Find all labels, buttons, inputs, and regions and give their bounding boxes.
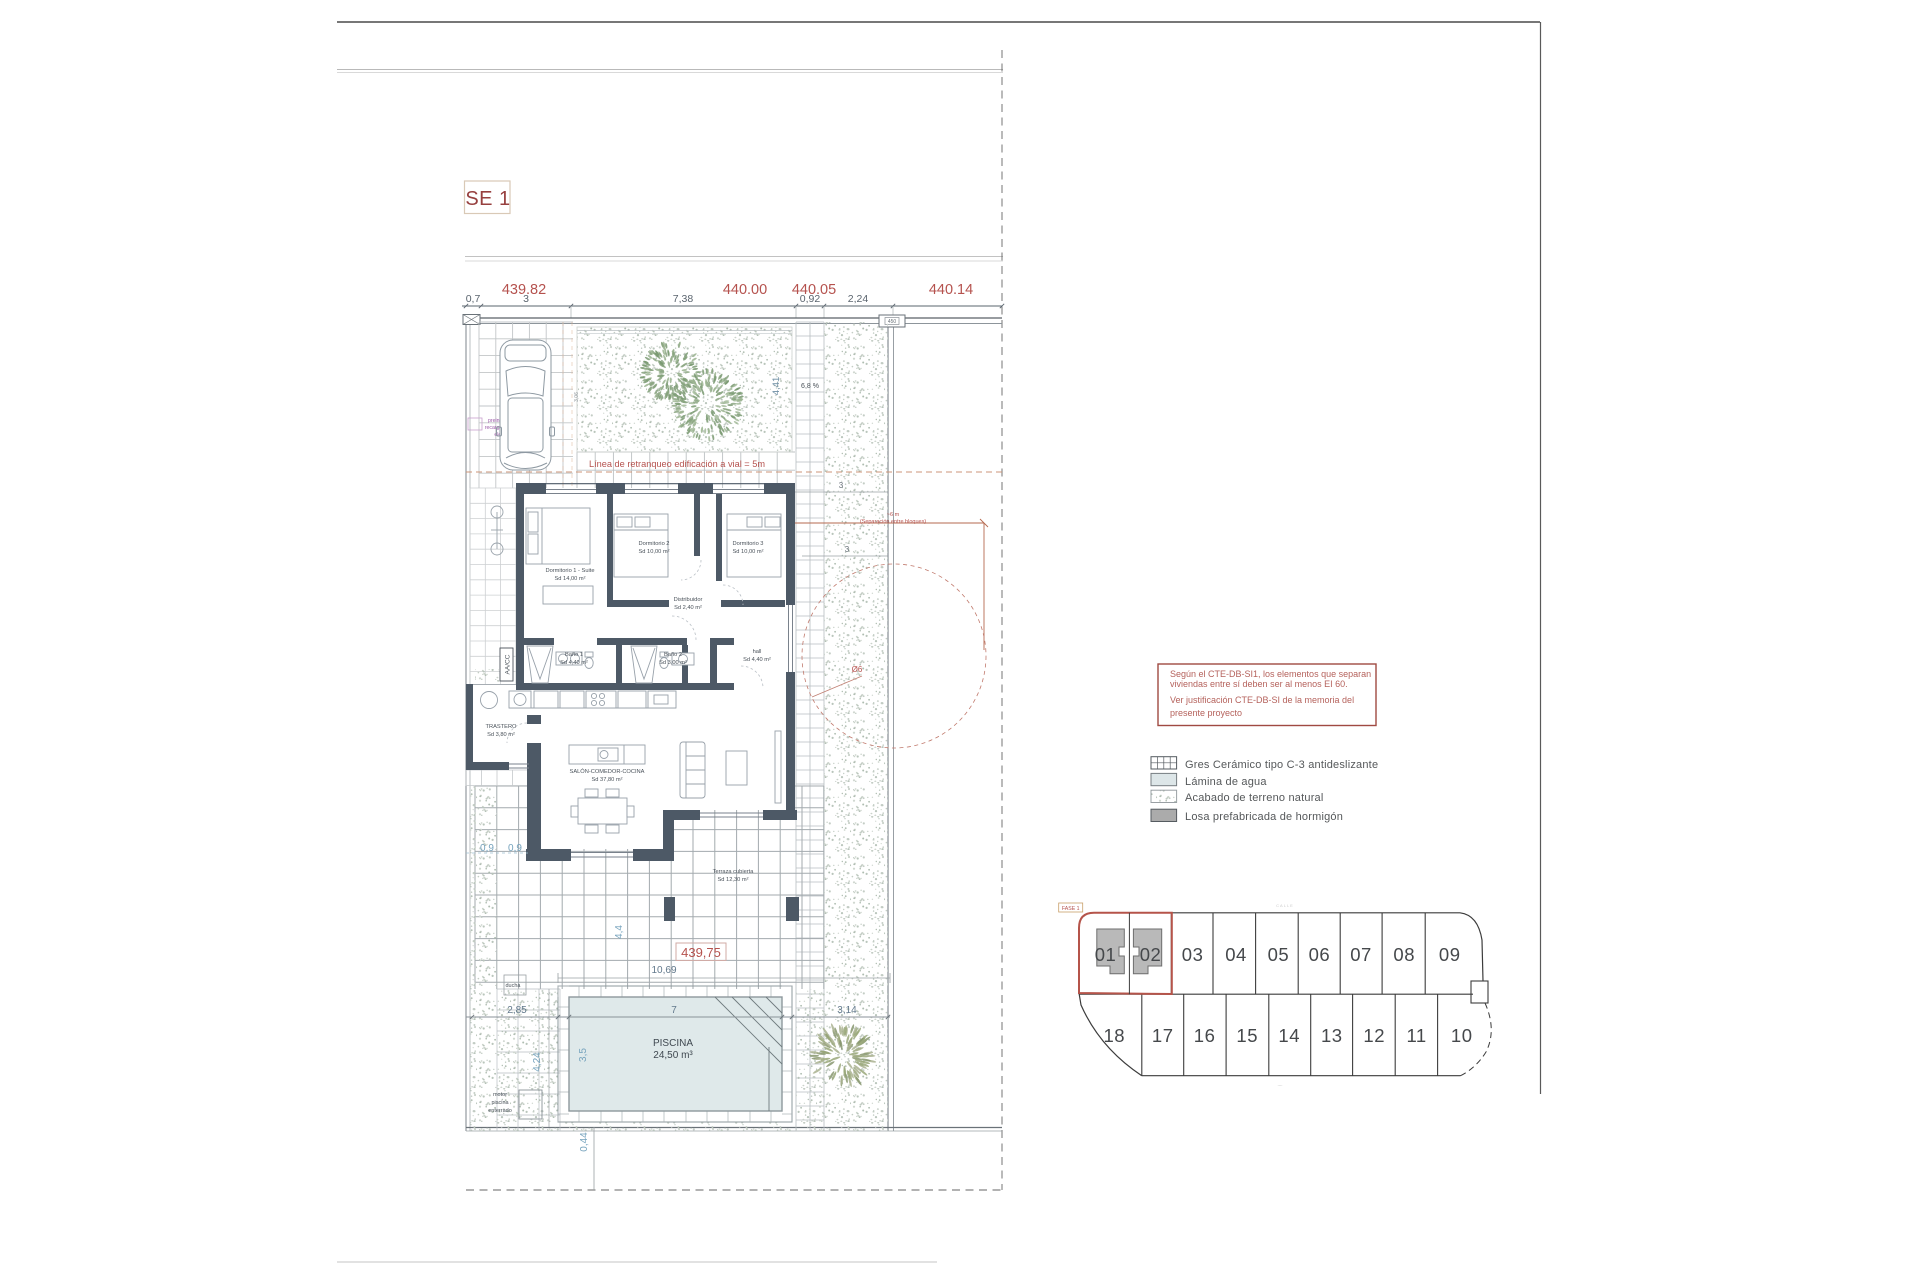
svg-text:11: 11 — [1406, 1025, 1426, 1046]
svg-text:viviendas entre sí deben ser a: viviendas entre sí deben ser al menos EI… — [1170, 679, 1348, 689]
svg-text:(Separación entre bloques): (Separación entre bloques) — [860, 519, 927, 525]
svg-text:Baño 2: Baño 2 — [664, 652, 682, 658]
svg-text:24,50 m³: 24,50 m³ — [653, 1050, 693, 1061]
svg-text:440.00: 440.00 — [723, 282, 767, 298]
svg-text:09: 09 — [1439, 944, 1461, 965]
svg-text:Dormitorio 1 - Suite: Dormitorio 1 - Suite — [546, 568, 595, 574]
svg-text:0,44: 0,44 — [579, 1132, 590, 1152]
svg-text:07: 07 — [1350, 944, 1372, 965]
svg-text:hall: hall — [753, 649, 762, 655]
svg-text:04: 04 — [1225, 944, 1247, 965]
svg-text:Sd 4,40 m²: Sd 4,40 m² — [560, 660, 588, 666]
svg-text:Lámina de agua: Lámina de agua — [1185, 776, 1267, 788]
svg-text:450: 450 — [888, 319, 897, 325]
svg-text:18: 18 — [1104, 1025, 1126, 1046]
svg-text:7: 7 — [671, 1005, 677, 1016]
svg-text:Gres Cerámico tipo C-3 antides: Gres Cerámico tipo C-3 antideslizante — [1185, 759, 1378, 771]
svg-text:CALLE: CALLE — [1276, 903, 1294, 908]
svg-text:4,41: 4,41 — [771, 377, 782, 396]
svg-text:Sd 10,00 m²: Sd 10,00 m² — [733, 549, 764, 555]
svg-text:3: 3 — [839, 481, 844, 490]
svg-text:4,24: 4,24 — [532, 1052, 543, 1072]
svg-text:17: 17 — [1152, 1025, 1174, 1046]
svg-text:14: 14 — [1278, 1025, 1300, 1046]
svg-text:0,9: 0,9 — [508, 843, 522, 854]
svg-text:01: 01 — [1095, 944, 1117, 965]
svg-text:13: 13 — [1321, 1025, 1343, 1046]
svg-text:3: 3 — [523, 293, 529, 305]
svg-text:Baño 1: Baño 1 — [565, 652, 583, 658]
svg-text:Sd 3,00 m²: Sd 3,00 m² — [659, 660, 687, 666]
svg-text:SE 1: SE 1 — [465, 188, 510, 210]
svg-text:ducha: ducha — [506, 983, 522, 989]
svg-text:7,38: 7,38 — [673, 293, 694, 305]
svg-text:Acabado de terreno natural: Acabado de terreno natural — [1185, 792, 1324, 804]
svg-text:05: 05 — [1268, 944, 1290, 965]
svg-text:Sd 10,00 m²: Sd 10,00 m² — [639, 549, 670, 555]
svg-text:3: 3 — [845, 545, 850, 554]
svg-text:Terraza cubierta: Terraza cubierta — [713, 869, 755, 875]
svg-text:enterrado: enterrado — [488, 1108, 512, 1114]
svg-text:Ø6: Ø6 — [852, 665, 863, 674]
svg-text:3,14: 3,14 — [837, 1005, 857, 1016]
svg-text:03: 03 — [1182, 944, 1204, 965]
svg-text:0,7: 0,7 — [466, 293, 481, 305]
svg-text:presente proyecto: presente proyecto — [1170, 708, 1242, 718]
svg-text:06: 06 — [1309, 944, 1331, 965]
svg-text:440.14: 440.14 — [929, 282, 973, 298]
svg-text:10: 10 — [1451, 1025, 1473, 1046]
svg-text:....: .... — [1277, 1082, 1282, 1087]
svg-text:10,69: 10,69 — [651, 965, 676, 976]
svg-text:piscina: piscina — [491, 1100, 509, 1106]
svg-text:15: 15 — [1236, 1025, 1258, 1046]
svg-text:Sd 2,40 m²: Sd 2,40 m² — [674, 605, 702, 611]
svg-text:439,75: 439,75 — [681, 945, 721, 960]
svg-text:2,85: 2,85 — [507, 1005, 527, 1016]
svg-text:Sd 37,80 m²: Sd 37,80 m² — [592, 777, 623, 783]
svg-text:Sd 4,40 m²: Sd 4,40 m² — [743, 657, 771, 663]
svg-text:6,8 %: 6,8 % — [801, 383, 819, 390]
svg-text:08: 08 — [1393, 944, 1415, 965]
svg-text:2,24: 2,24 — [848, 293, 869, 305]
svg-text:PISCINA: PISCINA — [653, 1038, 693, 1049]
svg-text:16: 16 — [1194, 1025, 1216, 1046]
svg-text:02: 02 — [1140, 944, 1162, 965]
svg-text:Sd 12,30 m²: Sd 12,30 m² — [718, 877, 749, 883]
svg-text:0,92: 0,92 — [800, 293, 821, 305]
svg-text:0,9: 0,9 — [480, 843, 494, 854]
svg-text:FASE 1: FASE 1 — [1062, 906, 1080, 912]
svg-text:Línea de retranqueo edificació: Línea de retranqueo edificación a vial =… — [589, 459, 765, 469]
svg-text:4,4: 4,4 — [614, 925, 625, 939]
svg-text:Según el CTE-DB-SI1, los eleme: Según el CTE-DB-SI1, los elementos que s… — [1170, 669, 1371, 679]
svg-text:12: 12 — [1363, 1025, 1385, 1046]
svg-text:Ver justificación CTE-DB-SI de: Ver justificación CTE-DB-SI de la memori… — [1170, 695, 1354, 705]
svg-text:Dormitorio 2: Dormitorio 2 — [639, 541, 670, 547]
svg-text:Dormitorio 3: Dormitorio 3 — [733, 541, 764, 547]
svg-text:motor: motor — [493, 1092, 507, 1098]
svg-text:Sd 3,80 m²: Sd 3,80 m² — [487, 732, 515, 738]
svg-text:Losa prefabricada de hormigón: Losa prefabricada de hormigón — [1185, 811, 1343, 823]
svg-text:Distribuidor: Distribuidor — [674, 597, 703, 603]
svg-text:SALÓN-COMEDOR-COCINA: SALÓN-COMEDOR-COCINA — [570, 768, 645, 775]
svg-text:3,06: 3,06 — [574, 392, 580, 402]
svg-text:3,5: 3,5 — [578, 1048, 589, 1062]
svg-text:Sd 14,00 m²: Sd 14,00 m² — [555, 576, 586, 582]
svg-text:~6 m: ~6 m — [887, 512, 900, 518]
svg-text:TRASTERO: TRASTERO — [486, 724, 518, 730]
svg-text:AA/CC: AA/CC — [505, 654, 512, 674]
